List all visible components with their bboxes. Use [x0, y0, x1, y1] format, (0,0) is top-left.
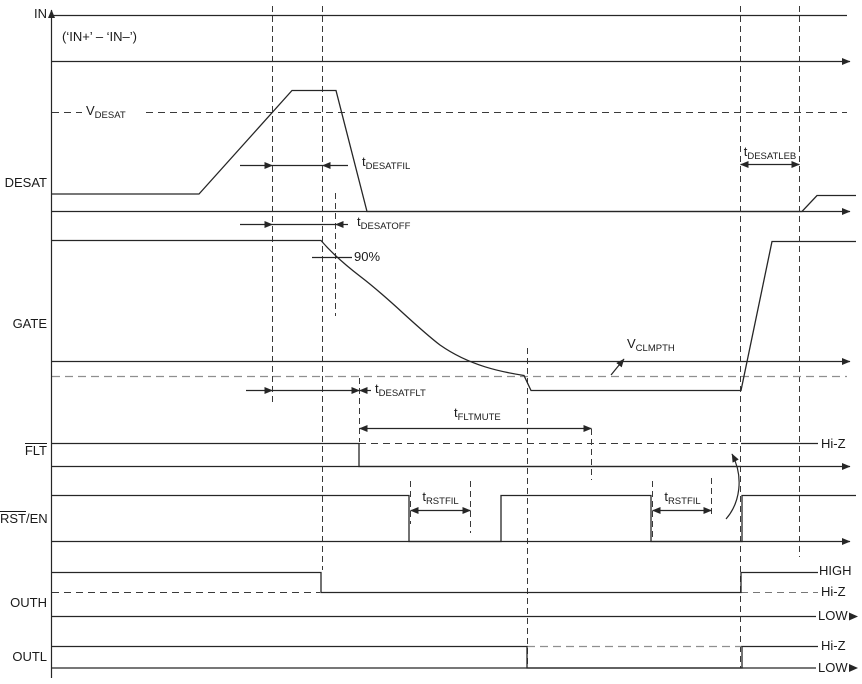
event-dashed-verticals	[273, 6, 800, 668]
timing-diagram-canvas	[0, 0, 862, 684]
v-desat-label: VDESAT	[86, 104, 126, 123]
measure-arrows	[240, 165, 800, 520]
flt-hiz-label: Hi-Z	[821, 437, 846, 451]
t-rstfil-label-2: tRSTFIL	[652, 490, 713, 509]
t-desatflt-label: tDESATFLT	[375, 382, 426, 401]
row-label-outh: OUTH	[0, 596, 47, 610]
timing-diagram: IN DESAT GATE FLT RST/EN OUTH OUTL (‘IN+…	[0, 0, 862, 684]
t-desatleb-label: tDESATLEB	[740, 145, 800, 164]
outh-hiz-label: Hi-Z	[821, 585, 846, 599]
outh-high-label: HIGH	[819, 564, 852, 578]
outl-low-label: LOW	[818, 661, 848, 675]
flt-release-curved-arrow	[726, 454, 739, 519]
flt-trace	[52, 444, 818, 467]
v-clmpth-label: VCLMPTH	[627, 337, 675, 356]
t-fltmute-label: tFLTMUTE	[454, 406, 501, 425]
threshold-dashed-lines	[52, 113, 847, 647]
outh-low-label: LOW	[818, 609, 848, 623]
row-label-outl: OUTL	[0, 650, 47, 664]
row-label-desat: DESAT	[0, 176, 47, 190]
t-desatfil-label: tDESATFIL	[362, 155, 410, 174]
signal-traces	[52, 16, 856, 669]
outl-hiz-label: Hi-Z	[821, 639, 846, 653]
gate-90-label: 90%	[354, 250, 380, 264]
row-label-in: IN	[0, 7, 47, 21]
outl-trace	[52, 647, 818, 669]
t-rstfil-label-1: tRSTFIL	[410, 490, 471, 509]
row-label-gate: GATE	[0, 317, 47, 331]
row-label-flt: FLT	[0, 443, 47, 458]
in-differential-note: (‘IN+’ – ‘IN–’)	[62, 30, 137, 44]
desat-trace	[52, 91, 856, 212]
gate-trace	[52, 241, 856, 391]
row-label-rst-en: RST/EN	[0, 511, 47, 526]
outh-trace	[52, 573, 818, 593]
axes	[52, 10, 859, 678]
t-desatoff-label: tDESATOFF	[357, 215, 410, 234]
